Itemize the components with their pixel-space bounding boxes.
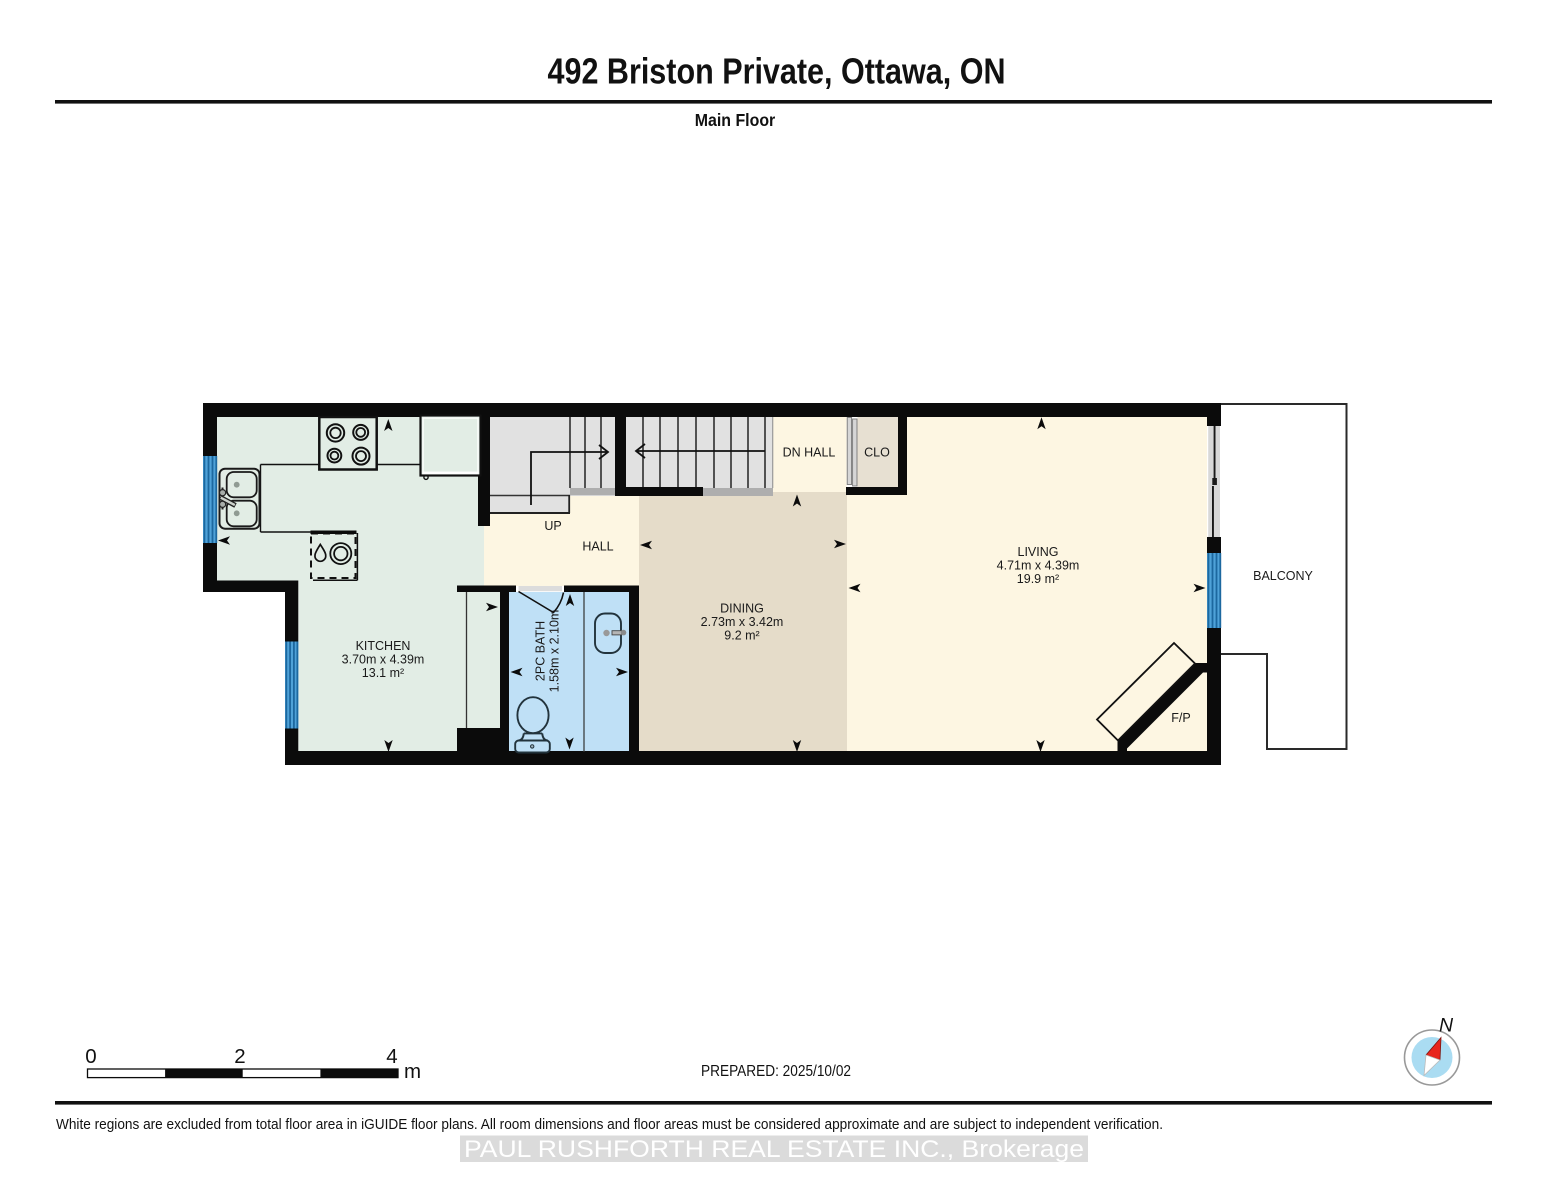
svg-text:PAUL RUSHFORTH REAL ESTATE INC: PAUL RUSHFORTH REAL ESTATE INC., Brokera…	[464, 1136, 1084, 1163]
svg-text:1.58m x 2.10m: 1.58m x 2.10m	[548, 610, 562, 693]
svg-text:UP: UP	[544, 519, 561, 533]
svg-text:F/P: F/P	[1171, 711, 1190, 725]
svg-text:9.2 m²: 9.2 m²	[724, 629, 759, 643]
svg-text:DN HALL: DN HALL	[783, 446, 836, 460]
svg-text:2: 2	[234, 1045, 245, 1068]
svg-text:N: N	[1439, 1015, 1454, 1037]
svg-text:4.71m x 4.39m: 4.71m x 4.39m	[997, 559, 1080, 573]
svg-text:White regions are excluded fro: White regions are excluded from total fl…	[56, 1116, 1163, 1133]
svg-text:4: 4	[386, 1045, 397, 1068]
svg-text:2.73m x 3.42m: 2.73m x 3.42m	[701, 615, 784, 629]
svg-text:DINING: DINING	[720, 602, 764, 616]
svg-text:Main Floor: Main Floor	[695, 110, 776, 130]
svg-text:19.9 m²: 19.9 m²	[1017, 572, 1059, 586]
svg-text:KITCHEN: KITCHEN	[356, 639, 411, 653]
svg-text:13.1 m²: 13.1 m²	[362, 666, 404, 680]
svg-text:3.70m x 4.39m: 3.70m x 4.39m	[342, 653, 425, 667]
svg-text:492 Briston Private, Ottawa, O: 492 Briston Private, Ottawa, ON	[548, 51, 1006, 92]
svg-text:2PC BATH: 2PC BATH	[534, 621, 548, 681]
svg-text:HALL: HALL	[582, 540, 613, 554]
svg-text:LIVING: LIVING	[1018, 545, 1059, 559]
svg-text:PREPARED: 2025/10/02: PREPARED: 2025/10/02	[701, 1063, 851, 1080]
svg-text:BALCONY: BALCONY	[1253, 569, 1313, 583]
svg-text:0: 0	[85, 1045, 96, 1068]
svg-text:m: m	[404, 1060, 421, 1083]
svg-text:CLO: CLO	[864, 446, 890, 460]
